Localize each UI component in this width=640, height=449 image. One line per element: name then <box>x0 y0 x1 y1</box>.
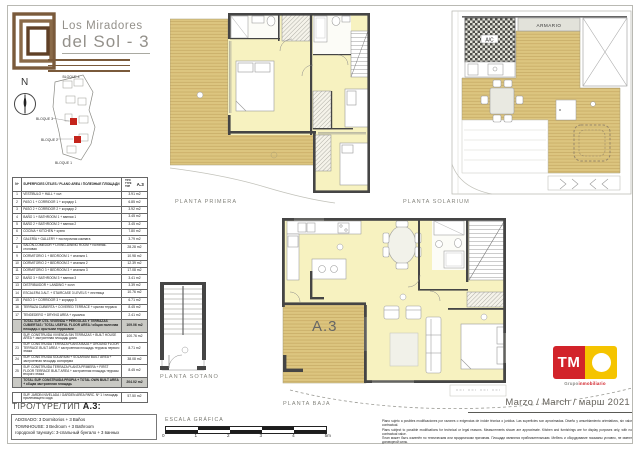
row-number: 5 <box>13 222 22 228</box>
row-description: TENDEDERO + DRYING AREA + сушилка <box>22 312 121 318</box>
header-tipo: TIPO TYPE ТИП A.3 <box>121 178 147 191</box>
row-description: DORMITORIO 1 + BEDROOM 1 + спальня 1 <box>22 253 121 259</box>
row-description: TOTAL SUP. ÚTIL VIVIENDA + PÉRGOLAS Y TE… <box>22 320 121 332</box>
row-number <box>13 378 22 387</box>
bloque-2-label: BLOQUE 2 <box>41 138 58 142</box>
row-area-value: 3.39 m2 <box>121 283 147 289</box>
table-row: 10 DORMITORIO 2 + BEDROOM 2 + спальня 2 … <box>12 261 148 268</box>
tagline-grupo: Grupo <box>564 381 578 386</box>
louver-area <box>462 120 548 173</box>
row-description: PASO 2 + CORRIDOR 2 + коридор 2 <box>22 207 121 213</box>
row-description: COCINA + KITCHEN + кухня <box>22 229 121 235</box>
unit-number-label: A.3 <box>312 318 338 335</box>
lower-stair-strip <box>548 176 620 190</box>
row-area-value: 10.76 m2 <box>121 290 147 296</box>
tm-tagline: Grupoinmobiliario <box>553 381 617 386</box>
row-area-value: 100.76 m2 <box>121 333 147 342</box>
row-area-value: 3.45 m2 <box>121 214 147 220</box>
row-area-value: 6.85 m2 <box>121 199 147 205</box>
row-description: DORMITORIO 2 + BEDROOM 2 + спальня 2 <box>22 261 121 267</box>
table-row: 11 DORMITORIO 3 + BEDROOM 3 + спальня 3 … <box>12 268 148 275</box>
row-description: SUP. CONSTRUIDA TERRAZA PLANTA PRIMERA +… <box>22 365 121 377</box>
scale-tick: 3 <box>260 433 263 438</box>
row-description: TERRAZA CUBIERTA + COVERED TERRACE + кры… <box>22 305 121 311</box>
row-number: 12 <box>13 275 22 281</box>
row-area-value: 3.92 m2 <box>121 207 147 213</box>
row-area-value: 8.45 m2 <box>121 365 147 377</box>
row-number: 16 <box>13 305 22 311</box>
unit-type-heading: TIPO/TYPE/ТИП A.3: <box>12 401 101 411</box>
logo-rule-1 <box>48 59 130 61</box>
header-tipo-words: TIPO TYPE ТИП <box>125 180 135 188</box>
row-description: DORMITORIO 3 + BEDROOM 3 + спальня 3 <box>22 268 121 274</box>
primera-plan-label: PLANTA PRIMERA <box>175 199 237 205</box>
table-row: 13 DISTRIBUIDOR + LANDING + холл 3.39 m2 <box>12 283 148 290</box>
scale-tick: 1 <box>195 433 198 438</box>
table-row: 12 BAÑO 3 + BATHROOM 3 + ванная 3 3.41 m… <box>12 275 148 282</box>
row-number: 10 <box>13 261 22 267</box>
disclaimer-ru: План может быть изменён по техническим и… <box>382 436 632 445</box>
areas-table: Nº SUPERFICIES ÚTILES / PLANO AREA / ПОЛ… <box>12 177 148 403</box>
date-underline <box>468 412 632 413</box>
row-number <box>13 320 22 332</box>
table-row: 1 VESTÍBULO + HALL + хол 3.91 m2 <box>12 192 148 199</box>
tagline-inmobiliario: inmobiliario <box>578 381 605 386</box>
row-area-value: 3.79 m2 <box>121 236 147 242</box>
room-marker <box>591 102 596 107</box>
room-marker <box>337 244 343 250</box>
row-description: VESTÍBULO + HALL + хол <box>22 192 121 198</box>
legal-disclaimer: Plano sujeto a posibles modificaciones p… <box>382 419 632 445</box>
floor-plan-baja: A.3 <box>270 205 520 405</box>
header-desc: SUPERFICIES ÚTILES / PLANO AREA / ПОЛЕЗН… <box>22 178 121 191</box>
row-number <box>13 333 22 342</box>
table-row: 23 SUP. CONSTRUIDA TERRAZA PLANTA BAJA +… <box>12 343 148 356</box>
row-area-value: 8.71 m2 <box>121 343 147 355</box>
table-row: SUP. CONSTRUIDA VIVIENDA SIN TERRAZAS + … <box>12 333 148 343</box>
tm-brand-logo: TM <box>553 346 617 379</box>
room-marker <box>182 347 188 353</box>
scale-bar-label: ESCALA GRÁFICA <box>165 417 224 423</box>
plan-sheet: Los Miradores del Sol - 3 N BLOQUE 4 BLO… <box>0 0 640 449</box>
table-row: 2 PASO 1 + CORRIDOR 1 + коридор 1 6.85 m… <box>12 199 148 206</box>
sun-circle-icon <box>592 353 611 372</box>
table-header: Nº SUPERFICIES ÚTILES / PLANO AREA / ПОЛ… <box>12 177 148 192</box>
scale-ticks: 0 1 2 3 4 5m <box>162 433 331 438</box>
row-number: 15 <box>13 298 22 304</box>
row-area-value: 7.80 m2 <box>121 229 147 235</box>
plan-date: Marzo / March / марш 2021 <box>440 397 630 408</box>
bloque-3-label: BLOQUE 3 <box>36 117 53 121</box>
table-row: 8 SALÓN-COMEDOR + LIVING-DINING ROOM + г… <box>12 244 148 254</box>
table-row: 15 PASO 3 + CORRIDOR 3 + коридор 3 6.71 … <box>12 298 148 305</box>
project-title: Los Miradores del Sol - 3 <box>62 20 150 54</box>
row-area-value: 2.41 m2 <box>121 312 147 318</box>
table-row: 24 SUP. CONSTRUIDA SOLARIUM + SOLARIUM B… <box>12 356 148 366</box>
row-number: 2 <box>13 199 22 205</box>
row-number: 9 <box>13 253 22 259</box>
unit-type-label: TIPO/TYPE/ТИП <box>12 401 80 411</box>
bloque-4-label: BLOQUE 4 <box>63 75 80 79</box>
bloque-1-label: BLOQUE 1 <box>55 161 72 165</box>
logo-rule-2 <box>48 65 130 67</box>
row-number: 24 <box>13 356 22 365</box>
wardrobe <box>467 292 505 307</box>
ac-label: A/C <box>485 37 494 43</box>
tm-monogram: TM <box>553 346 585 379</box>
project-title-line1: Los Miradores <box>62 20 150 32</box>
row-description: PASO 1 + CORRIDOR 1 + коридор 1 <box>22 199 121 205</box>
areas-table-body: 1 VESTÍBULO + HALL + хол 3.91 m2 2 PASO … <box>12 192 148 388</box>
row-description: BAÑO 1 + BATHROOM 1 + ванная 1 <box>22 214 121 220</box>
row-area-value: 3.91 m2 <box>121 192 147 198</box>
floor-plan-sotano <box>158 282 208 374</box>
row-description: SUP. CONSTRUIDA TERRAZA PLANTA BAJA + GR… <box>22 343 121 355</box>
row-description: GALERÍA + GALLERY + постирочная комната <box>22 236 121 242</box>
row-area-value: 12.39 m2 <box>121 261 147 267</box>
room-marker <box>197 92 203 98</box>
staircase <box>469 220 505 280</box>
header-tipo-value: A.3 <box>137 182 144 187</box>
table-row: 5 BAÑO 2 + BATHROOM 2 + ванная 2 3.45 m2 <box>12 222 148 229</box>
table-row: TOTAL SUP. ÚTIL VIVIENDA + PÉRGOLAS Y TE… <box>12 320 148 333</box>
row-area-value: 28.28 m2 <box>121 244 147 253</box>
table-row: 14 ESCALERA 3 ALT. + STAIRCASE 3 LEVELS … <box>12 290 148 297</box>
row-number: 17 <box>13 312 22 318</box>
scale-tick: 5m <box>325 433 331 438</box>
row-number: 14 <box>13 290 22 296</box>
site-plan: BLOQUE 4 BLOQUE 3 BLOQUE 2 BLOQUE 1 <box>33 72 108 172</box>
row-number: 1 <box>13 192 22 198</box>
row-description: BAÑO 3 + BATHROOM 3 + ванная 3 <box>22 275 121 281</box>
scale-tick: 0 <box>162 433 165 438</box>
table-row: 3 PASO 2 + CORRIDOR 2 + коридор 2 3.92 m… <box>12 207 148 214</box>
row-area-value: 38.08 m2 <box>121 356 147 365</box>
room-marker <box>481 314 487 320</box>
north-label: N <box>21 77 28 88</box>
row-number: 13 <box>13 283 22 289</box>
disclaimer-en: Plans subject to possible modifications … <box>382 428 632 437</box>
row-number: 8 <box>13 244 22 253</box>
row-number: 25 <box>13 365 22 377</box>
row-area-value: 6.71 m2 <box>121 298 147 304</box>
unit-desc-en: TOWNHOUSE: 3 Bedroom + 3 Bathroom <box>15 424 153 431</box>
row-description: SUP. CONSTRUIDA VIVIENDA SIN TERRAZAS + … <box>22 333 121 342</box>
floor-plan-primera <box>170 5 370 205</box>
room-marker <box>400 294 406 300</box>
tm-sun-icon <box>585 346 617 379</box>
row-description: SALÓN-COMEDOR + LIVING-DINING ROOM + гос… <box>22 244 121 253</box>
unit-desc-ru: городской таунхаус: 3-спальный бунгало +… <box>15 430 153 437</box>
void-above <box>583 18 627 86</box>
staircase <box>351 31 368 77</box>
row-area-value: 3.41 m2 <box>121 275 147 281</box>
bed <box>461 324 505 369</box>
scale-tick: 4 <box>292 433 295 438</box>
disclaimer-es: Plano sujeto a posibles modificaciones p… <box>382 419 632 428</box>
row-description: SUP. CONSTRUIDA SOLARIUM + SOLARIUM BUIL… <box>22 356 121 365</box>
header-num: Nº <box>13 178 22 191</box>
table-row: 16 TERRAZA CUBIERTA + COVERED TERRACE + … <box>12 305 148 312</box>
table-row: 6 COCINA + KITCHEN + кухня 7.80 m2 <box>12 229 148 236</box>
row-number: 3 <box>13 207 22 213</box>
row-area-value: 3.45 m2 <box>121 222 147 228</box>
summer-kitchen-counter <box>465 62 515 77</box>
table-row: 25 SUP. CONSTRUIDA TERRAZA PLANTA PRIMER… <box>12 365 148 378</box>
table-row: 4 BAÑO 1 + BATHROOM 1 + ванная 1 3.45 m2 <box>12 214 148 221</box>
row-area-value: 8.45 m2 <box>121 305 147 311</box>
row-description: PASO 3 + CORRIDOR 3 + коридор 3 <box>22 298 121 304</box>
garden-boundary-line <box>170 168 335 203</box>
row-number: 4 <box>13 214 22 220</box>
garden-row-value: 57.50 m2 <box>121 393 147 402</box>
row-area-value: 204.02 m2 <box>121 378 147 387</box>
scale-tick: 2 <box>227 433 230 438</box>
row-description: ESCALERA 3 ALT. + STAIRCASE 3 LEVELS + л… <box>22 290 121 296</box>
row-number: 6 <box>13 229 22 235</box>
row-number: 23 <box>13 343 22 355</box>
row-area-value: 17.08 m2 <box>121 268 147 274</box>
sotano-plan-label: PLANTA SOTANO <box>160 374 219 380</box>
table-row: 9 DORMITORIO 1 + BEDROOM 1 + спальня 1 1… <box>12 253 148 260</box>
unit-type-description: ADOSADO: 3 Dormitorios + 3 Baños TOWNHOU… <box>11 414 157 440</box>
row-number: 7 <box>13 236 22 242</box>
unit-desc-es: ADOSADO: 3 Dormitorios + 3 Baños <box>15 417 153 424</box>
row-description: DISTRIBUIDOR + LANDING + холл <box>22 283 121 289</box>
project-title-line2: del Sol - 3 <box>62 32 150 54</box>
row-number: 11 <box>13 268 22 274</box>
table-row: TOTAL SUP. CONSTRUIDA PROPIA + TOTAL OWN… <box>12 378 148 388</box>
row-description: TOTAL SUP. CONSTRUIDA PROPIA + TOTAL OWN… <box>22 378 121 387</box>
row-description: BAÑO 2 + BATHROOM 2 + ванная 2 <box>22 222 121 228</box>
armario-label: ARMARIO <box>537 23 562 28</box>
row-area-value: 10.98 m2 <box>121 253 147 259</box>
unit-type-value: A.3: <box>83 401 101 411</box>
floor-plan-solarium: A/C ARMARIO <box>450 8 635 198</box>
row-area-value: 109.06 m2 <box>121 320 147 332</box>
